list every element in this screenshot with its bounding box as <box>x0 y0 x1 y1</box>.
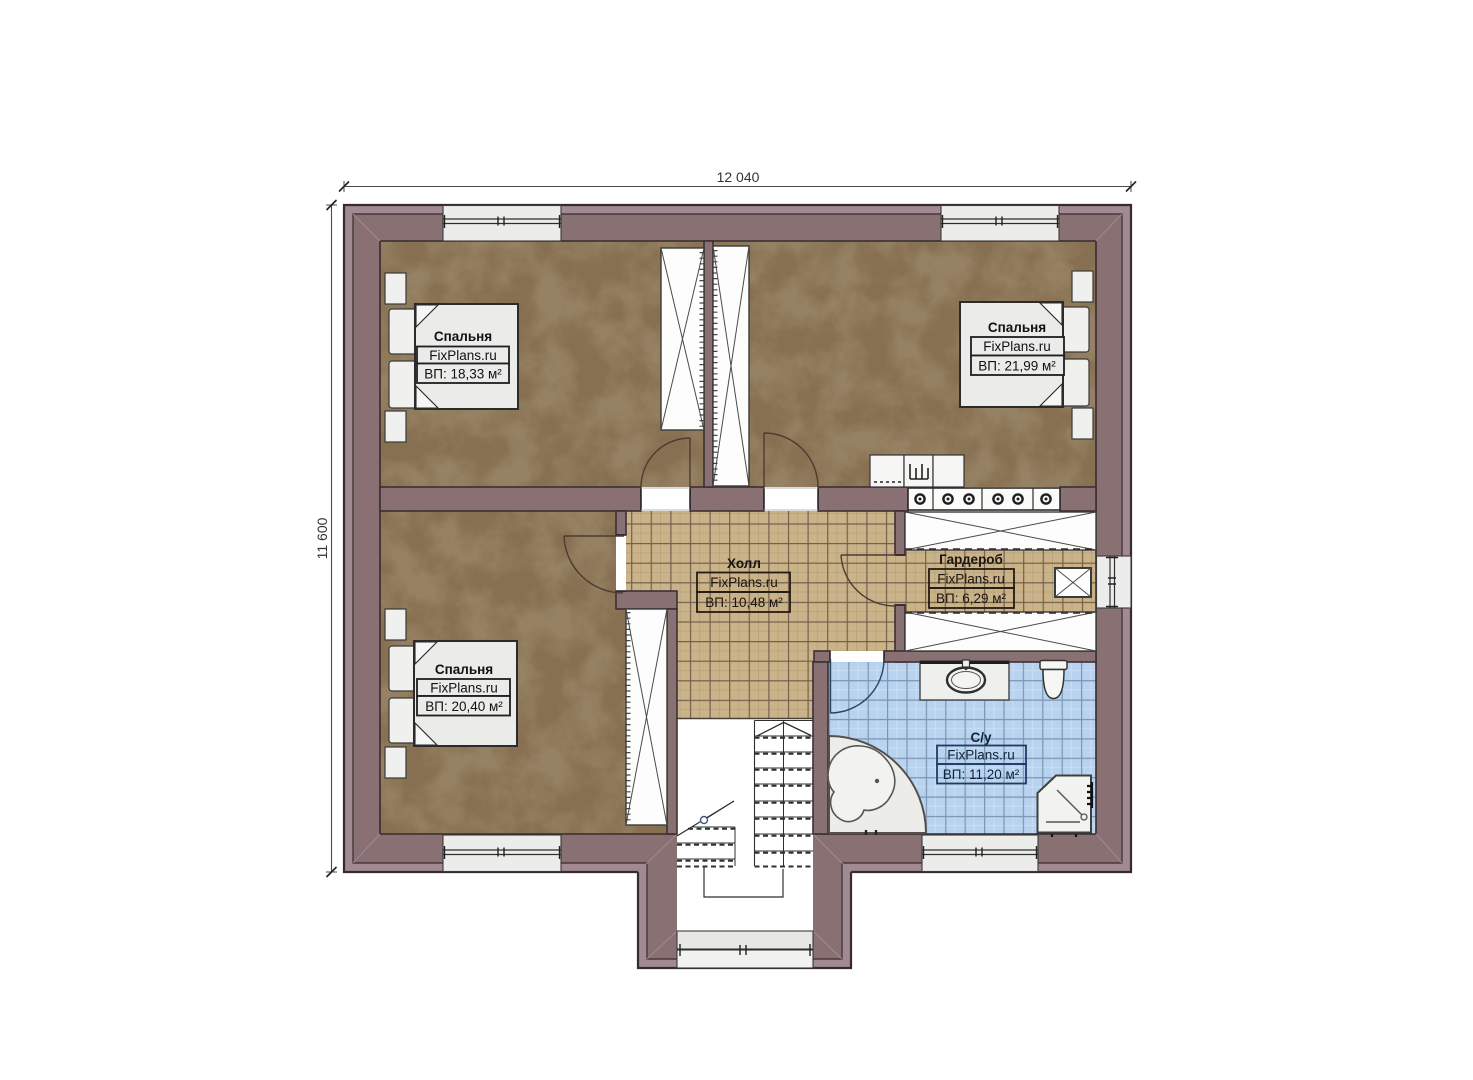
svg-text:ВП: 18,33 м²: ВП: 18,33 м² <box>424 367 502 382</box>
svg-text:ВП: 10,48 м²: ВП: 10,48 м² <box>705 595 783 610</box>
svg-text:FixPlans.ru: FixPlans.ru <box>710 575 778 590</box>
svg-text:Спальня: Спальня <box>988 320 1046 335</box>
svg-text:11 600: 11 600 <box>314 517 330 559</box>
svg-text:Спальня: Спальня <box>435 662 493 677</box>
svg-text:FixPlans.ru: FixPlans.ru <box>429 348 497 363</box>
svg-text:Спальня: Спальня <box>434 329 492 344</box>
svg-text:FixPlans.ru: FixPlans.ru <box>430 681 498 696</box>
svg-text:FixPlans.ru: FixPlans.ru <box>947 748 1015 763</box>
svg-text:ВП: 11,20 м²: ВП: 11,20 м² <box>943 767 1020 782</box>
svg-text:FixPlans.ru: FixPlans.ru <box>983 339 1051 354</box>
svg-text:Гардероб: Гардероб <box>939 552 1003 567</box>
svg-text:Холл: Холл <box>727 556 761 571</box>
svg-text:С/у: С/у <box>970 730 992 745</box>
svg-text:ВП: 20,40 м²: ВП: 20,40 м² <box>425 699 503 714</box>
svg-text:FixPlans.ru: FixPlans.ru <box>937 572 1005 587</box>
svg-text:ВП: 21,99 м²: ВП: 21,99 м² <box>978 359 1056 374</box>
svg-text:12 040: 12 040 <box>717 169 760 185</box>
svg-text:ВП: 6,29 м²: ВП: 6,29 м² <box>936 591 1007 606</box>
